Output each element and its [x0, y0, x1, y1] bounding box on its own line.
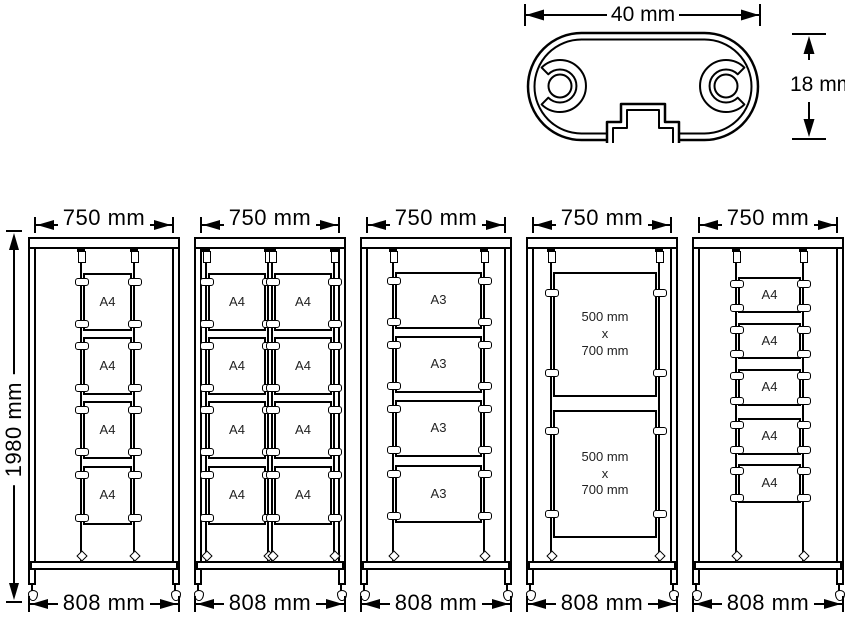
frame-top-rail [526, 237, 678, 249]
display-panel: A4 [208, 466, 266, 525]
cable-clip [328, 342, 342, 350]
display-panel: A4 [738, 277, 801, 313]
display-panel: 500 mm x 700 mm [553, 410, 657, 538]
cable-hanger [800, 251, 808, 263]
cross-section-height-label-wrap: 18 mm [786, 74, 845, 95]
cable-clip [200, 278, 214, 286]
height-dimension-tick-top [6, 230, 22, 232]
panel-label: A4 [762, 287, 778, 304]
top-dimension-label-wrap: 750 mm [526, 206, 678, 229]
cable-clip [478, 446, 492, 454]
cable [802, 251, 804, 561]
cable-clip [797, 421, 811, 429]
base-dimension-label-wrap: 808 mm [526, 591, 678, 614]
cable-clip [128, 384, 142, 392]
display-panel: A4 [274, 401, 332, 459]
cable-clip [797, 280, 811, 288]
cable-clip [266, 471, 280, 479]
cable-clip [730, 326, 744, 334]
cable-clip [128, 514, 142, 522]
frame-post-left [526, 237, 534, 585]
cable-clip [200, 320, 214, 328]
cable-hanger [481, 251, 489, 263]
frame-post-left [28, 237, 36, 585]
display-panel: A4 [738, 464, 801, 503]
cable-clip [730, 280, 744, 288]
cable-clip [730, 494, 744, 502]
cable-clip [797, 446, 811, 454]
cable-clip [128, 448, 142, 456]
top-dimension-label: 750 mm [556, 206, 648, 229]
cable-clip [730, 446, 744, 454]
frame-bottom-rail [30, 561, 178, 570]
cable-clip [128, 278, 142, 286]
cable-clip [387, 341, 401, 349]
diagram-canvas: 40 mm 18 mm 1980 mm 750 mm808 mmA4A4A4A4… [0, 0, 845, 618]
cable-clip [730, 372, 744, 380]
cable-clip [730, 397, 744, 405]
cable-clip [797, 467, 811, 475]
cable-hanger [390, 251, 398, 263]
frame-post-right [172, 237, 180, 585]
display-panel: A4 [208, 337, 266, 395]
cable-clip [797, 326, 811, 334]
display-panel: A4 [83, 466, 132, 525]
frame-top-rail [360, 237, 512, 249]
height-dimension-tick-bottom [6, 601, 22, 603]
cable-bottom-fitting [388, 550, 399, 561]
cable-clip [653, 289, 667, 297]
cable-clip [387, 382, 401, 390]
cable-bottom-fitting [129, 550, 140, 561]
panel-label: A4 [100, 294, 116, 311]
cable-clip [387, 512, 401, 520]
cable-clip [266, 448, 280, 456]
cable [735, 251, 737, 561]
cable-clip [328, 278, 342, 286]
panel-label: A4 [100, 487, 116, 504]
cable-hanger [78, 251, 86, 263]
top-dimension-label-wrap: 750 mm [692, 206, 844, 229]
cable-clip [75, 406, 89, 414]
cable-clip [200, 384, 214, 392]
top-dimension-label: 750 mm [224, 206, 316, 229]
base-dimension-label-wrap: 808 mm [28, 591, 180, 614]
frame-top-rail [28, 237, 180, 249]
display-panel: A4 [274, 273, 332, 331]
top-dimension-label-wrap: 750 mm [360, 206, 512, 229]
cable-clip [653, 510, 667, 518]
display-panel: A4 [274, 466, 332, 525]
panel-label: A4 [295, 358, 311, 375]
cable-clip [545, 289, 559, 297]
panel-label: A4 [295, 487, 311, 504]
frame-post-right [504, 237, 512, 585]
cable-clip [478, 382, 492, 390]
panel-label: A3 [431, 420, 447, 437]
height-dimension-label: 1980 mm [1, 374, 27, 485]
cable-bottom-fitting [654, 550, 665, 561]
panel-label: A4 [100, 358, 116, 375]
panel-label: A4 [229, 422, 245, 439]
cable-clip [730, 304, 744, 312]
panel-label: A4 [100, 422, 116, 439]
stand-4: 750 mm808 mm500 mm x 700 mm500 mm x 700 … [526, 0, 678, 618]
cable-clip [266, 406, 280, 414]
display-panel: A3 [395, 400, 482, 457]
panel-label: A4 [295, 294, 311, 311]
panel-label: A3 [431, 292, 447, 309]
cable-clip [75, 471, 89, 479]
cable-bottom-fitting [798, 550, 809, 561]
cable-clip [75, 278, 89, 286]
display-panel: A4 [83, 273, 132, 331]
panel-label: A4 [229, 358, 245, 375]
cable-clip [200, 471, 214, 479]
cable-clip [653, 369, 667, 377]
display-panel: A4 [208, 273, 266, 331]
cable-hanger [331, 251, 339, 263]
cable-bottom-fitting [76, 550, 87, 561]
stand-1: 750 mm808 mmA4A4A4A4 [28, 0, 180, 618]
height-dimension: 1980 mm [0, 228, 30, 614]
cable-clip [328, 320, 342, 328]
cable-clip [128, 471, 142, 479]
top-dimension-label: 750 mm [722, 206, 814, 229]
frame-post-left [360, 237, 368, 585]
panel-label: A4 [229, 294, 245, 311]
cable-clip [478, 277, 492, 285]
height-dimension-label-wrap: 1980 mm [0, 340, 29, 520]
cable-clip [478, 405, 492, 413]
cable-hanger [269, 251, 277, 263]
cable-clip [200, 514, 214, 522]
cable-clip [75, 384, 89, 392]
cable-clip [128, 342, 142, 350]
top-dimension-label: 750 mm [390, 206, 482, 229]
display-panel: A4 [738, 418, 801, 455]
display-panel: A4 [738, 369, 801, 406]
frame-bottom-rail [196, 561, 344, 570]
top-dimension-label-wrap: 750 mm [194, 206, 346, 229]
cable-clip [797, 397, 811, 405]
cable-clip [797, 494, 811, 502]
display-panel: A3 [395, 465, 482, 523]
cable-hanger [131, 251, 139, 263]
cable-clip [730, 421, 744, 429]
cable-clip [387, 446, 401, 454]
panel-label: A4 [295, 422, 311, 439]
frame-top-rail [692, 237, 844, 249]
cable-clip [266, 320, 280, 328]
cross-section-height-label: 18 mm [786, 73, 845, 96]
cable-clip [266, 278, 280, 286]
base-dimension-label: 808 mm [224, 591, 316, 614]
cable-hanger [656, 251, 664, 263]
cable-clip [545, 427, 559, 435]
cable-clip [545, 369, 559, 377]
frame-post-right [836, 237, 844, 585]
panel-label: 500 mm x 700 mm [582, 449, 629, 500]
cable-bottom-fitting [479, 550, 490, 561]
display-panel: A4 [83, 337, 132, 395]
display-panel: A3 [395, 272, 482, 329]
cable-clip [653, 427, 667, 435]
cable-bottom-fitting [201, 550, 212, 561]
base-dimension-label: 808 mm [556, 591, 648, 614]
cable-clip [545, 510, 559, 518]
display-panel: A3 [395, 336, 482, 393]
cable-clip [200, 406, 214, 414]
base-dimension-label: 808 mm [58, 591, 150, 614]
cable-clip [75, 320, 89, 328]
cable-clip [75, 342, 89, 350]
cable-hanger [733, 251, 741, 263]
panel-label: A4 [762, 379, 778, 396]
cable-clip [478, 318, 492, 326]
cable-clip [328, 471, 342, 479]
base-dimension-label-wrap: 808 mm [360, 591, 512, 614]
cable-clip [387, 405, 401, 413]
base-dimension-label-wrap: 808 mm [194, 591, 346, 614]
panel-label: A4 [229, 487, 245, 504]
cable-clip [75, 448, 89, 456]
top-dimension-label: 750 mm [58, 206, 150, 229]
cable-clip [266, 384, 280, 392]
stand-2: 750 mm808 mmA4A4A4A4A4A4A4A4 [194, 0, 346, 618]
cable-clip [328, 448, 342, 456]
cross-section-width-label: 40 mm [607, 3, 679, 26]
base-dimension-label-wrap: 808 mm [692, 591, 844, 614]
cable-clip [387, 277, 401, 285]
cable-hanger [548, 251, 556, 263]
cable-clip [128, 320, 142, 328]
cable-clip [797, 304, 811, 312]
cable-clip [200, 448, 214, 456]
base-dimension-label: 808 mm [390, 591, 482, 614]
cable-clip [730, 350, 744, 358]
frame-bottom-rail [362, 561, 510, 570]
stand-3: 750 mm808 mmA3A3A3A3 [360, 0, 512, 618]
cable-clip [797, 350, 811, 358]
cable-bottom-fitting [546, 550, 557, 561]
panel-label: A4 [762, 428, 778, 445]
frame-bottom-rail [528, 561, 676, 570]
cable-clip [266, 342, 280, 350]
display-panel: A4 [208, 401, 266, 459]
cable-clip [328, 514, 342, 522]
cable-clip [387, 318, 401, 326]
frame-top-rail [194, 237, 346, 249]
frame-bottom-rail [694, 561, 842, 570]
frame-post-right [670, 237, 678, 585]
cable-clip [478, 341, 492, 349]
frame-post-left [692, 237, 700, 585]
height-dimension-arrow-up [9, 233, 19, 250]
panel-label: 500 mm x 700 mm [582, 309, 629, 360]
cable-clip [730, 467, 744, 475]
panel-label: A4 [762, 333, 778, 350]
panel-label: A4 [762, 475, 778, 492]
display-panel: A4 [83, 401, 132, 459]
cable-clip [266, 514, 280, 522]
cable-clip [478, 470, 492, 478]
base-dimension-label: 808 mm [722, 591, 814, 614]
cable-clip [200, 342, 214, 350]
cable-clip [387, 470, 401, 478]
height-dimension-arrow-down [9, 583, 19, 600]
display-panel: 500 mm x 700 mm [553, 272, 657, 397]
cable-clip [328, 384, 342, 392]
cable-clip [328, 406, 342, 414]
display-panel: A4 [738, 323, 801, 359]
panel-label: A3 [431, 486, 447, 503]
cable-hanger [203, 251, 211, 263]
cable-clip [128, 406, 142, 414]
cable-clip [478, 512, 492, 520]
panel-label: A3 [431, 356, 447, 373]
cable-clip [797, 372, 811, 380]
cross-section-width-label-wrap: 40 mm [593, 4, 693, 25]
top-dimension-label-wrap: 750 mm [28, 206, 180, 229]
cable-clip [75, 514, 89, 522]
cable-bottom-fitting [731, 550, 742, 561]
display-panel: A4 [274, 337, 332, 395]
